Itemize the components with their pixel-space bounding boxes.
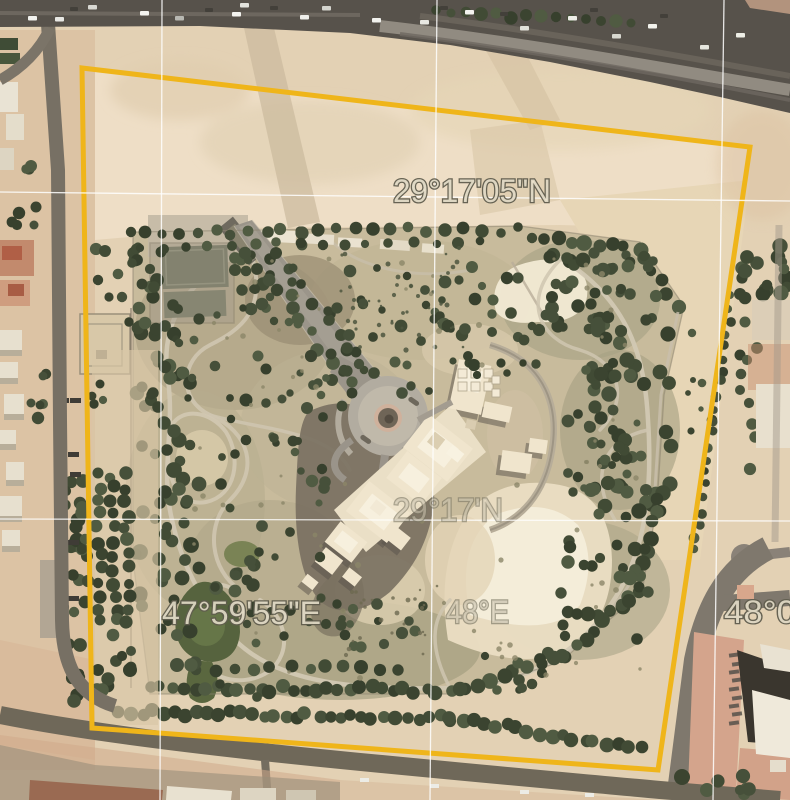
svg-text:48°0: 48°0 xyxy=(724,594,790,630)
svg-text:29°17'N: 29°17'N xyxy=(393,492,503,528)
svg-text:48°E: 48°E xyxy=(446,594,509,630)
svg-text:47°59'55"E: 47°59'55"E xyxy=(162,595,321,631)
svg-text:29°17'05"N: 29°17'05"N xyxy=(393,173,551,209)
